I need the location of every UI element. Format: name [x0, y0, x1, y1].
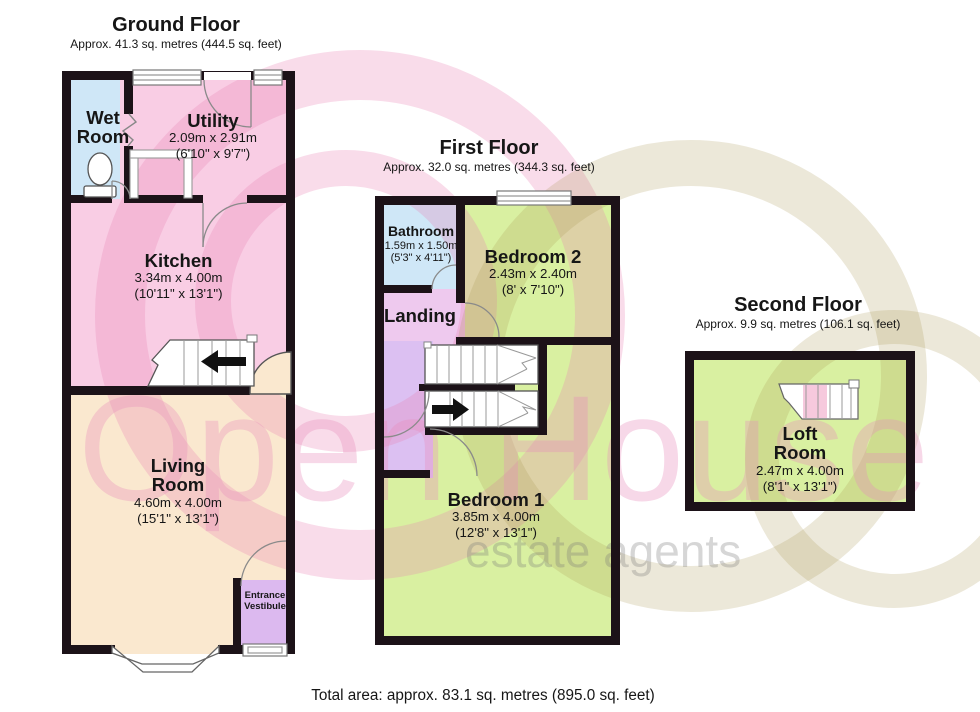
landing-label: Landing: [380, 306, 460, 325]
toilet-icon: [84, 153, 116, 197]
loft-room-label: Loft Room 2.47m x 4.00m (8'1" x 13'1"): [743, 424, 857, 495]
second-floor-subtitle: Approx. 9.9 sq. metres (106.1 sq. feet): [668, 318, 928, 331]
utility-label: Utility 2.09m x 2.91m (6'10" x 9'7"): [138, 111, 288, 162]
first-floor-subtitle: Approx. 32.0 sq. metres (344.3 sq. feet): [359, 161, 619, 174]
front-door: [243, 644, 287, 656]
kitchen-label: Kitchen 3.34m x 4.00m (10'11" x 13'1"): [86, 251, 271, 302]
first-floor-title: First Floor: [389, 137, 589, 159]
ground-floor-title: Ground Floor: [56, 14, 296, 36]
entrance-vestibule-label: Entrance Vestibule: [239, 591, 291, 613]
ground-stairs: [148, 335, 257, 386]
wet-room-label: Wet Room: [70, 108, 136, 147]
ground-floor-subtitle: Approx. 41.3 sq. metres (444.5 sq. feet): [36, 38, 316, 51]
structure-layer: [0, 0, 980, 712]
floorplan-page: Open House estate agents: [0, 0, 980, 712]
curved-wall: [250, 352, 291, 394]
bay-window: [112, 646, 219, 672]
total-area-text: Total area: approx. 83.1 sq. metres (895…: [233, 687, 733, 704]
first-floor-stairs: [424, 342, 538, 427]
second-floor-title: Second Floor: [698, 294, 898, 316]
living-room-label: Living Room 4.60m x 4.00m (15'1" x 13'1"…: [126, 456, 230, 527]
loft-stairs: [779, 380, 859, 419]
bedroom2-label: Bedroom 2 2.43m x 2.40m (8' x 7'10"): [453, 247, 613, 298]
bedroom1-label: Bedroom 1 3.85m x 4.00m (12'8" x 13'1"): [396, 490, 596, 541]
first-floor-window: [497, 191, 571, 205]
